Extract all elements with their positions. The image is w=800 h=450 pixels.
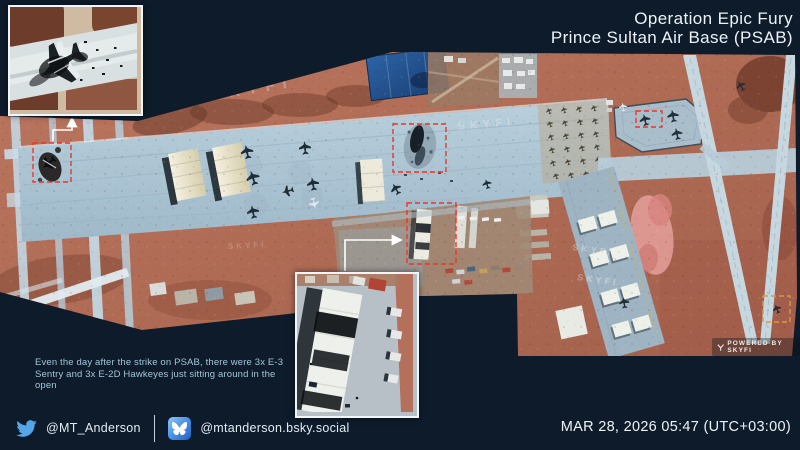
bluesky-handle: @mtanderson.bsky.social xyxy=(200,421,349,435)
twitter-handle: @MT_Anderson xyxy=(46,421,141,435)
bluesky-app-icon xyxy=(168,417,191,440)
caption-line: Sentry and 3x E-2D Hawkeyes just sitting… xyxy=(35,369,283,381)
caption-line: Even the day after the strike on PSAB, t… xyxy=(35,357,283,369)
inset-damaged-building xyxy=(295,272,419,418)
social-footer: @MT_Anderson @mtanderson.bsky.social xyxy=(16,412,350,444)
skyfi-logo-icon xyxy=(717,343,724,352)
capture-timestamp: MAR 28, 2026 05:47 (UTC+03:00) xyxy=(561,419,791,435)
analysis-caption: Even the day after the strike on PSAB, t… xyxy=(35,357,283,392)
post-graphic: SKYFI SKYFI SKYFI SKYFI SKYFI xyxy=(0,0,800,450)
inset-destroyed-aircraft xyxy=(8,5,143,116)
twitter-bird-icon xyxy=(16,420,37,437)
title-line-location: Prince Sultan Air Base (PSAB) xyxy=(551,28,793,47)
title-line-operation: Operation Epic Fury xyxy=(551,9,793,28)
caption-line: open xyxy=(35,380,283,392)
graphic-title: Operation Epic Fury Prince Sultan Air Ba… xyxy=(551,9,793,47)
provider-watermark: POWERED BY SKYFI xyxy=(712,338,800,356)
bluesky-butterfly-icon xyxy=(172,421,187,435)
provider-watermark-label: POWERED BY SKYFI xyxy=(727,340,795,354)
footer-divider xyxy=(154,415,156,442)
